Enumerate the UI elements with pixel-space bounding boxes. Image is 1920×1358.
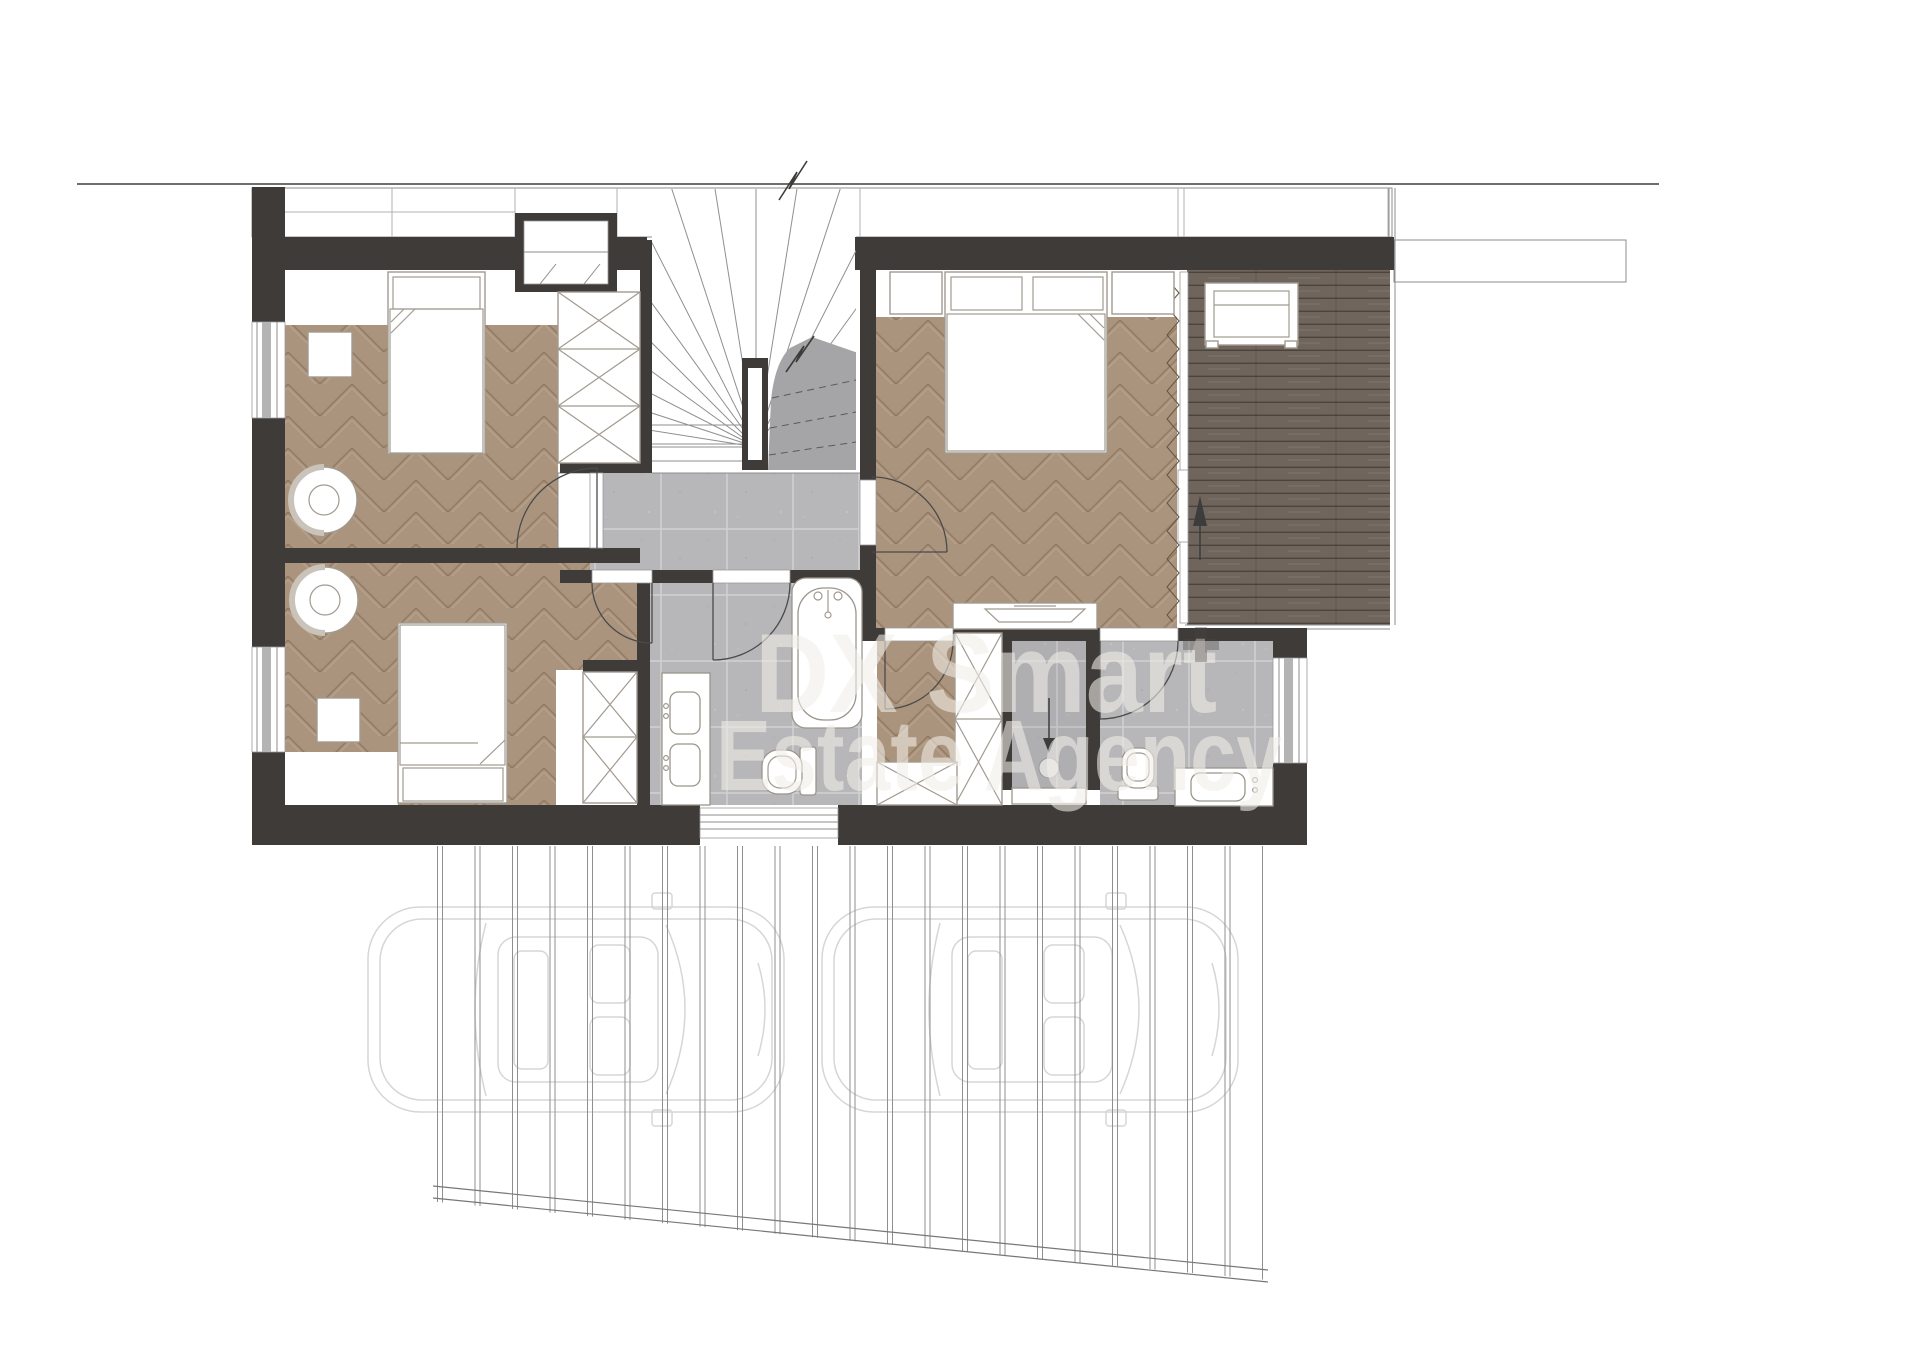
floor-plan-screenshot: DX Smart Estate Agency — [0, 0, 1920, 1358]
door-jamb-master — [860, 480, 876, 545]
window-bedroom1 — [252, 322, 285, 418]
watermark: DX Smart Estate Agency — [716, 611, 1282, 812]
carport — [368, 846, 1268, 1282]
wall-bedroom-divider — [252, 548, 640, 563]
bedroom2-bed — [398, 623, 507, 803]
door-jamb-bathroom — [713, 570, 790, 583]
wall-left-middle — [252, 418, 285, 648]
wall-right-upper — [1273, 641, 1307, 658]
bedroom1-wardrobe — [558, 292, 640, 463]
wall-bottom-left — [252, 805, 700, 845]
wall-hall-left — [560, 570, 592, 583]
wall-top-right — [855, 237, 1394, 270]
watermark-line2: Estate Agency — [716, 700, 1282, 812]
wall-wardrobe-niche — [583, 660, 650, 672]
door-jamb-bedroom2 — [592, 570, 652, 583]
wall-hall-pier1 — [652, 570, 713, 583]
bedroom2-wardrobe — [583, 672, 637, 803]
pergola-slats — [437, 846, 1267, 1280]
bedroom1-armchair — [291, 467, 357, 533]
deck-armchair — [1205, 283, 1298, 348]
window-bedroom2 — [252, 647, 285, 752]
wall-stairwell-left — [640, 240, 652, 473]
master-nightstand-left — [890, 272, 942, 314]
bedroom1-bed — [388, 272, 485, 454]
linen-nook — [558, 473, 592, 548]
wall-bedroom2-right — [637, 583, 650, 805]
bedroom1-nightstand — [308, 332, 352, 377]
stair-newel-slot2 — [748, 368, 762, 460]
neighbor-building-outline — [1394, 240, 1626, 282]
master-nightstand-right — [1112, 272, 1174, 314]
floor-plan-canvas: DX Smart Estate Agency — [0, 0, 1920, 1358]
wall-left-upper — [252, 187, 285, 322]
bedroom2-armchair — [292, 567, 358, 633]
master-bed — [945, 272, 1107, 453]
bedroom2-nightstand — [317, 698, 360, 742]
window-bathroom-bottom — [700, 808, 838, 838]
wall-master-left-upper — [860, 240, 876, 480]
bedroom2-floor-strip — [285, 752, 398, 805]
bathroom-vanity — [662, 673, 710, 805]
